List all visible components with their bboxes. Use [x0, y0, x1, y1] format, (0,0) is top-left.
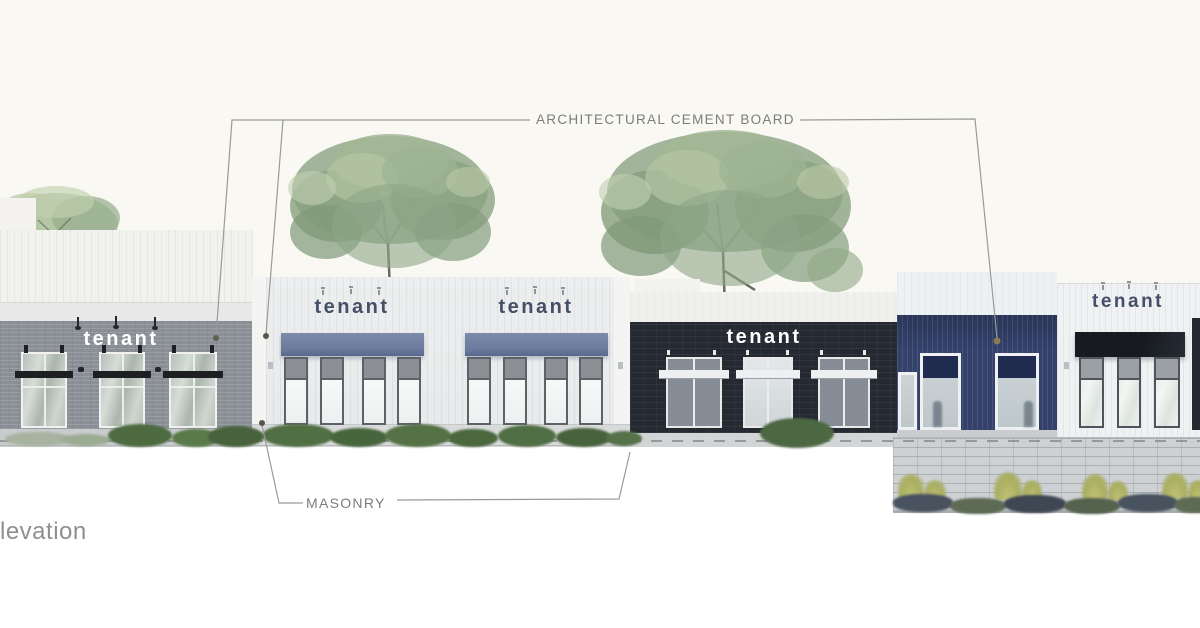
- elevation-rendering: tenant tenant tenant: [0, 0, 1200, 628]
- leader-dot: [263, 333, 269, 339]
- leader-dot: [213, 335, 219, 341]
- annotation-overlay: [0, 0, 1200, 628]
- leader-line-masonry-left: [262, 425, 303, 503]
- leader-line-masonry-right: [397, 452, 630, 500]
- leader-line-cement-board-left2: [266, 120, 283, 334]
- leader-line-cement-board-right: [800, 119, 997, 338]
- leader-dot: [259, 420, 265, 426]
- leader-line-cement-board-left: [216, 120, 530, 336]
- leader-dot: [994, 338, 1001, 345]
